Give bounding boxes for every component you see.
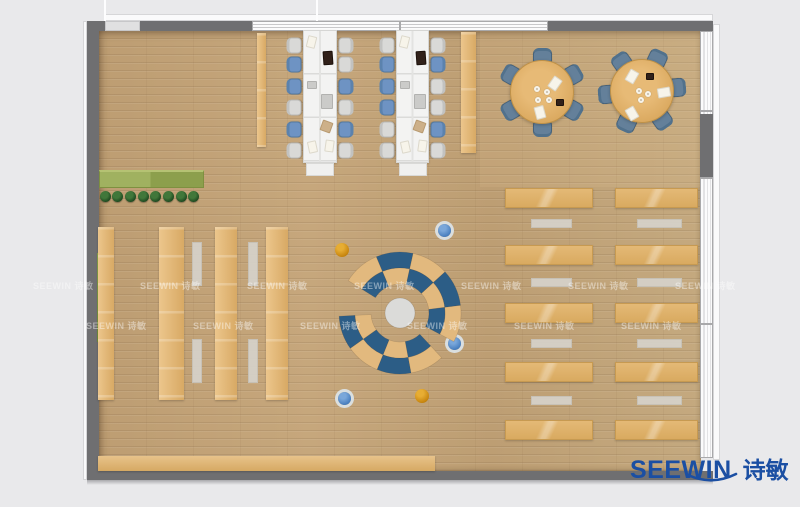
reading-desk [505, 303, 593, 323]
task-chair [431, 79, 446, 95]
reading-bench [637, 278, 682, 287]
task-chair [287, 38, 302, 54]
task-chair [287, 57, 302, 73]
task-chair [287, 122, 302, 138]
reading-desk [505, 420, 593, 440]
logo-text-cn: 诗敏 [743, 451, 789, 485]
plant [125, 191, 136, 202]
lounge-center-table [385, 298, 415, 328]
desk-item-paper [324, 139, 335, 152]
task-chair [287, 143, 302, 159]
reading-bench [637, 219, 682, 228]
cup [534, 86, 540, 92]
bookshelf-range-3 [215, 227, 237, 400]
cup [546, 97, 552, 103]
reading-desk [505, 245, 593, 265]
desk-item-dark [323, 51, 334, 66]
desk-item-dark [416, 51, 427, 66]
desk-item-gray [400, 81, 410, 89]
reading-desk [505, 362, 593, 382]
task-chair [431, 143, 446, 159]
aisle-bench [192, 339, 202, 383]
tabletop-device [556, 99, 564, 106]
desk-item-gray [321, 94, 333, 109]
workstation-end-desk [399, 163, 427, 176]
tabletop-paper [657, 86, 672, 98]
plant [150, 191, 161, 202]
cup [544, 89, 550, 95]
plant [138, 191, 149, 202]
reading-desk [615, 188, 698, 208]
task-chair [339, 79, 354, 95]
reading-desk [505, 188, 593, 208]
reading-bench [637, 396, 682, 405]
curved-lounge-seating [328, 241, 472, 385]
reading-bench [637, 339, 682, 348]
plant [163, 191, 174, 202]
task-chair [380, 100, 395, 116]
plant [100, 191, 111, 202]
floorplan-canvas: SEEWIN 诗敏SEEWIN 诗敏SEEWIN 诗敏SEEWIN 诗敏SEEW… [0, 0, 800, 507]
task-chair [431, 100, 446, 116]
task-chair [431, 122, 446, 138]
task-chair [339, 143, 354, 159]
plant [188, 191, 199, 202]
beanbag-blue [338, 392, 351, 405]
cup [636, 88, 642, 94]
task-chair [339, 57, 354, 73]
task-chair [431, 38, 446, 54]
bookshelf-range-1 [98, 227, 114, 400]
display-shelf-1 [257, 33, 266, 147]
tabletop-device [646, 73, 654, 80]
reading-desk [615, 362, 698, 382]
desk-item-gray [414, 94, 426, 109]
reading-desk [615, 245, 698, 265]
logo-swoosh-icon [686, 471, 740, 487]
furniture-layer [0, 0, 800, 507]
reading-bench [531, 396, 572, 405]
task-chair [339, 100, 354, 116]
desk-item-paper [417, 139, 428, 152]
beanbag-orange [415, 389, 429, 403]
aisle-bench [192, 242, 202, 286]
task-chair [380, 79, 395, 95]
reading-bench [531, 278, 572, 287]
task-chair [380, 143, 395, 159]
window-bench [98, 456, 435, 471]
task-chair [339, 122, 354, 138]
aisle-bench [248, 339, 258, 383]
workstation-end-desk [306, 163, 334, 176]
reading-desk [615, 303, 698, 323]
planter-box [99, 170, 204, 188]
beanbag-blue [438, 224, 451, 237]
cup [535, 97, 541, 103]
desk-item-gray [307, 81, 317, 89]
reading-bench [531, 339, 572, 348]
aisle-bench [248, 242, 258, 286]
task-chair [339, 38, 354, 54]
plant [112, 191, 123, 202]
task-chair [380, 122, 395, 138]
plant [176, 191, 187, 202]
task-chair [380, 38, 395, 54]
bookshelf-range-2 [159, 227, 184, 400]
reading-desk [615, 420, 698, 440]
display-shelf-2 [461, 32, 476, 153]
task-chair [287, 100, 302, 116]
cup [638, 97, 644, 103]
task-chair [287, 79, 302, 95]
reading-bench [531, 219, 572, 228]
bookshelf-range-4 [266, 227, 288, 400]
task-chair [380, 57, 395, 73]
seewin-logo: SEEWIN 诗敏 [630, 451, 789, 485]
cup [645, 91, 651, 97]
task-chair [431, 57, 446, 73]
